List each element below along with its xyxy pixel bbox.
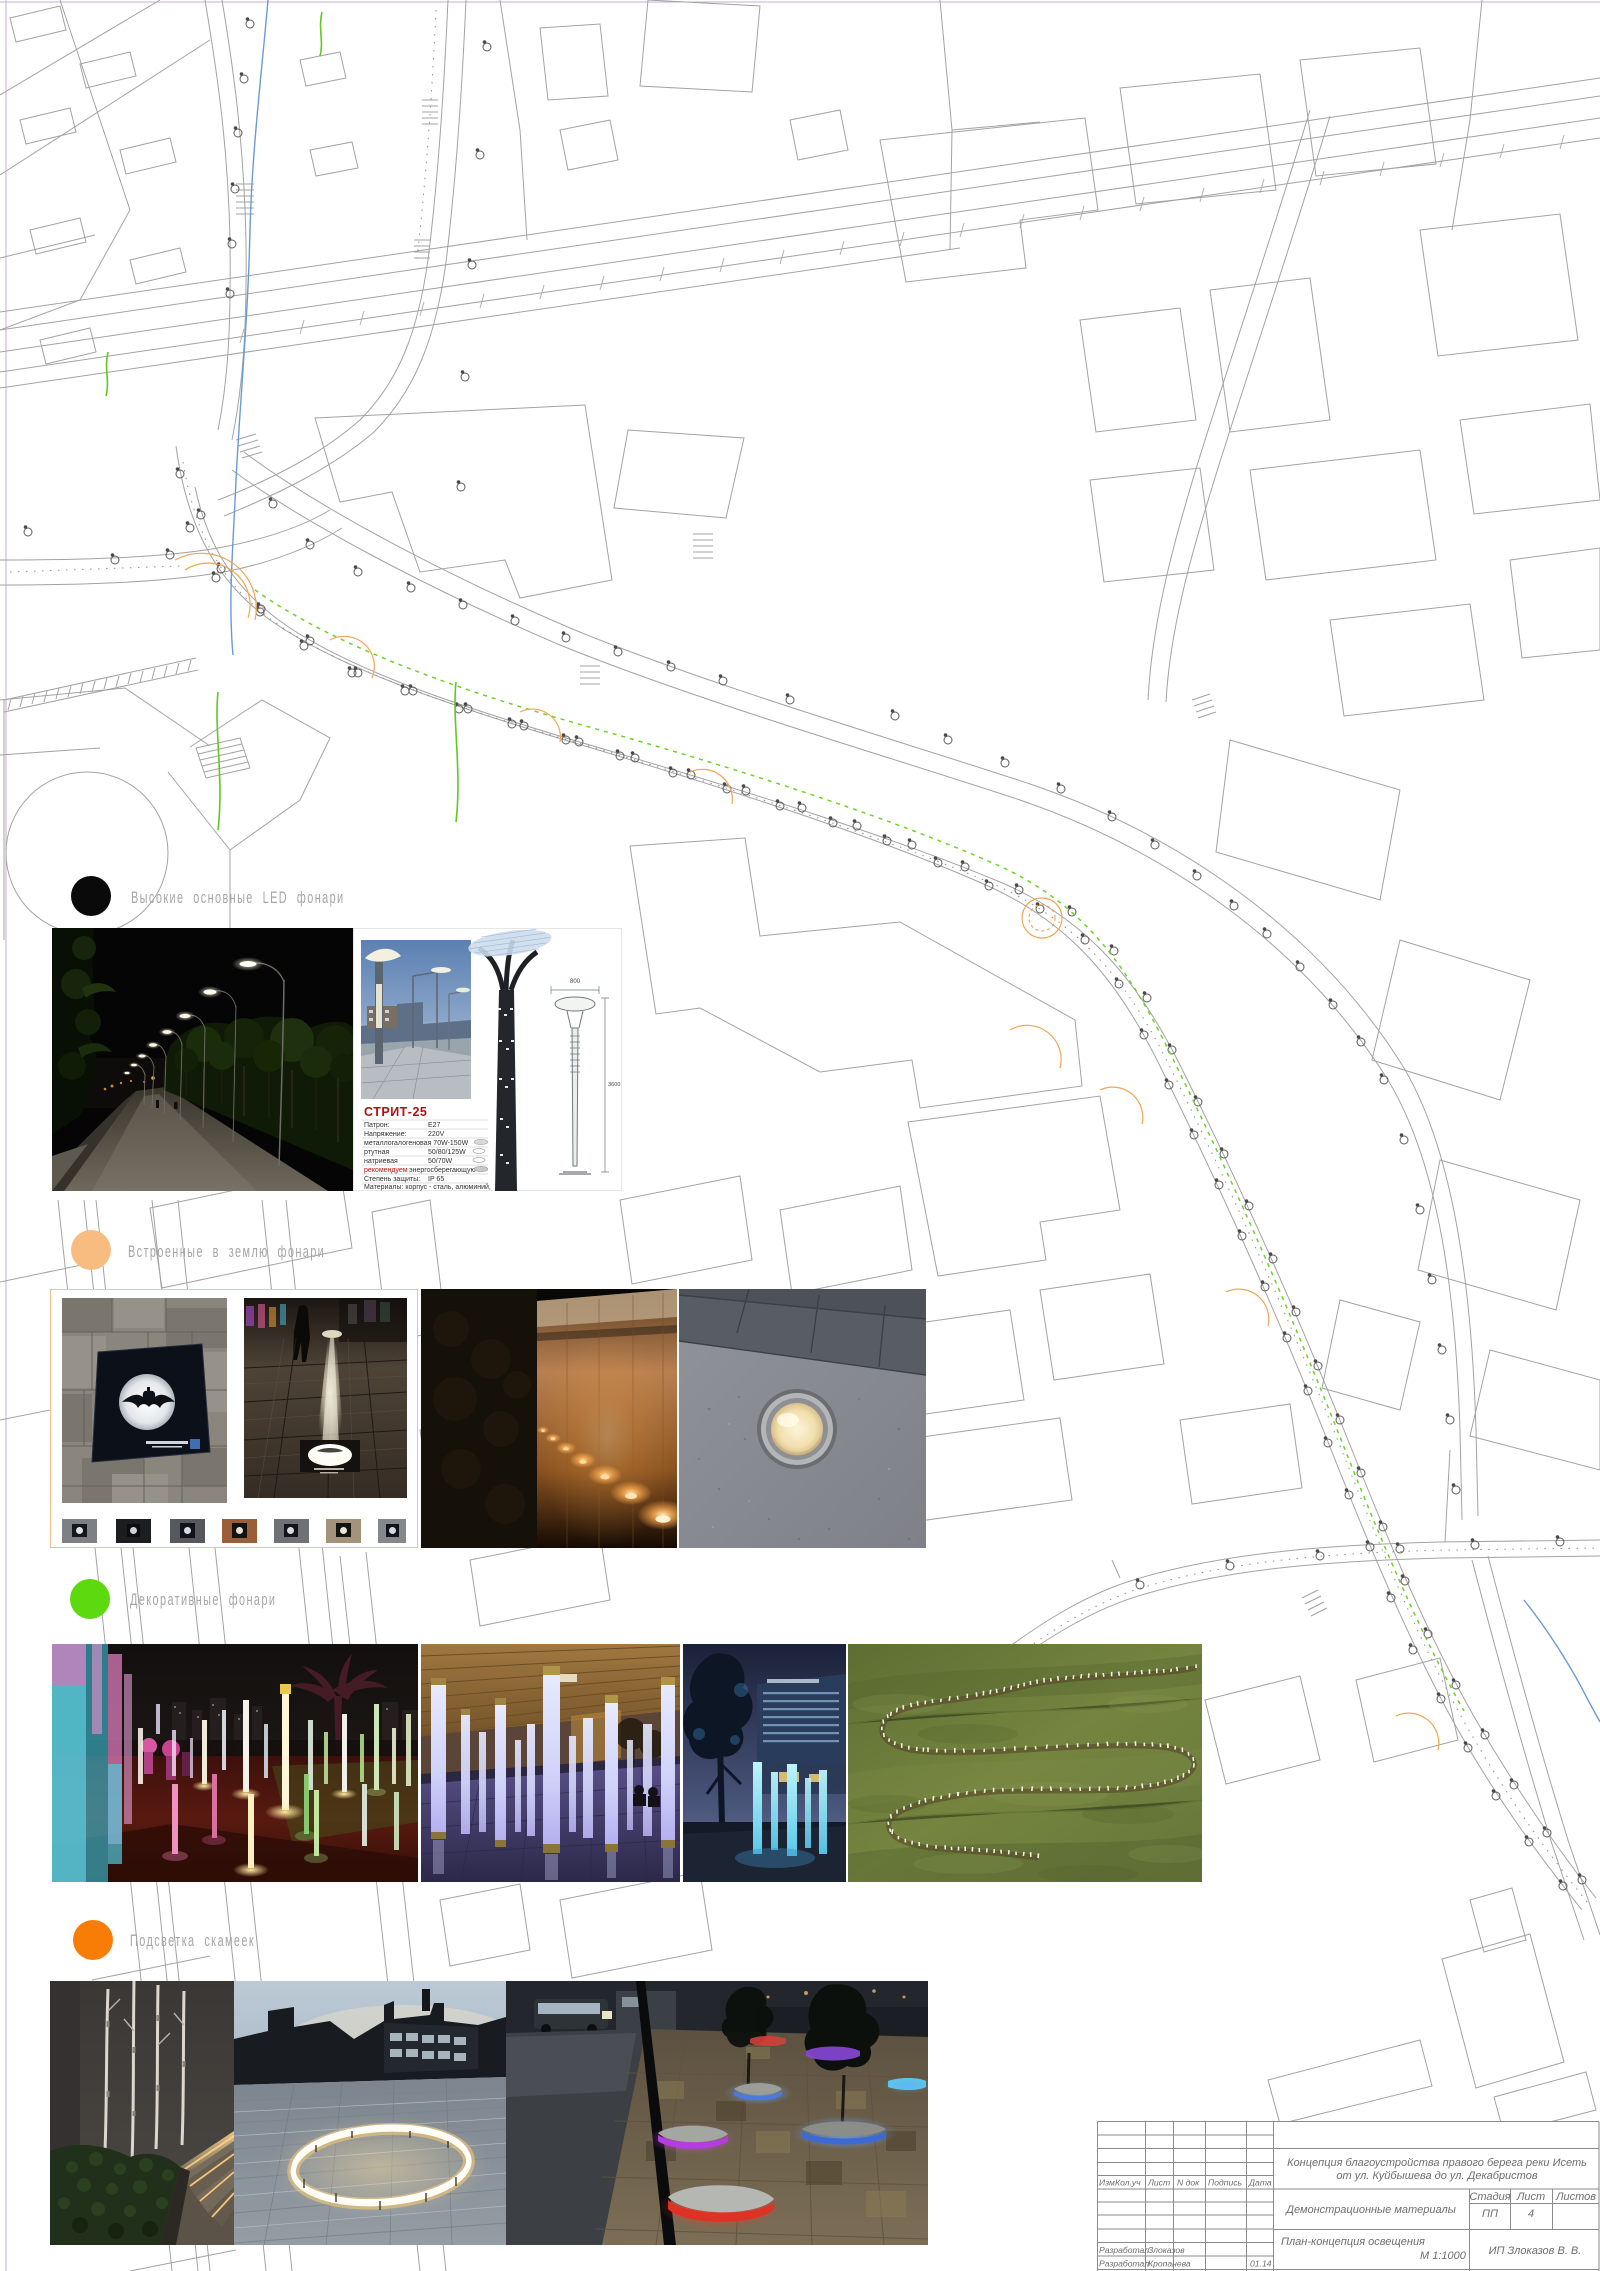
svg-text:01.14: 01.14 xyxy=(1250,2259,1272,2269)
svg-text:ПП: ПП xyxy=(1482,2208,1498,2220)
svg-text:натриевая: натриевая xyxy=(364,1158,398,1165)
svg-text:Разработал: Разработал xyxy=(1099,2245,1149,2255)
svg-text:50/70W: 50/70W xyxy=(428,1158,453,1165)
svg-text:Кол.уч: Кол.уч xyxy=(1115,2178,1141,2188)
svg-text:энергосберегающую: энергосберегающую xyxy=(409,1166,476,1174)
svg-text:3600: 3600 xyxy=(608,1082,620,1088)
svg-text:Лист: Лист xyxy=(1516,2191,1545,2203)
svg-text:Подпись: Подпись xyxy=(1208,2178,1243,2188)
svg-text:Стадия: Стадия xyxy=(1469,2191,1510,2203)
svg-text:Напряжение:: Напряжение: xyxy=(364,1131,407,1138)
svg-text:Разработал: Разработал xyxy=(1099,2259,1149,2269)
svg-text:План-концепция освещения: План-концепция освещения xyxy=(1281,2236,1425,2248)
svg-text:800: 800 xyxy=(570,979,581,985)
svg-text:Злоказов: Злоказов xyxy=(1148,2245,1185,2255)
svg-text:Кропанева: Кропанева xyxy=(1148,2259,1191,2269)
svg-text:50/80/125W: 50/80/125W xyxy=(428,1149,466,1156)
svg-text:М 1:1000: М 1:1000 xyxy=(1420,2250,1467,2262)
svg-text:Патрон:: Патрон: xyxy=(364,1122,390,1129)
svg-text:металлогалогеновая 70W-150W: металлогалогеновая 70W-150W xyxy=(364,1140,469,1147)
svg-text:Листов: Листов xyxy=(1555,2191,1596,2203)
svg-text:Степень защиты:: Степень защиты: xyxy=(364,1176,420,1183)
svg-text:СТРИТ-25: СТРИТ-25 xyxy=(364,1105,427,1119)
svg-text:рекомендуем: рекомендуем xyxy=(364,1167,408,1174)
svg-text:N док: N док xyxy=(1177,2178,1200,2188)
svg-text:ИП Злоказов В. В.: ИП Злоказов В. В. xyxy=(1489,2245,1582,2257)
svg-text:Дата: Дата xyxy=(1248,2178,1272,2188)
svg-text:Лист: Лист xyxy=(1147,2178,1170,2188)
svg-text:4: 4 xyxy=(1528,2208,1534,2220)
svg-text:ртутная: ртутная xyxy=(364,1149,389,1156)
svg-text:IP 65: IP 65 xyxy=(428,1176,444,1183)
svg-text:Демонстрационные материалы: Демонстрационные материалы xyxy=(1284,2204,1456,2216)
svg-text:Изм: Изм xyxy=(1099,2178,1115,2188)
svg-text:220V: 220V xyxy=(428,1131,445,1138)
svg-text:Е27: Е27 xyxy=(428,1122,441,1129)
svg-text:Материалы: корпус - сталь, алю: Материалы: корпус - сталь, алюминий, xyxy=(364,1183,491,1191)
svg-text:Концепция благоустройства прав: Концепция благоустройства правого берега… xyxy=(1287,2157,1587,2169)
svg-text:от ул. Куйбышева до ул. Декабр: от ул. Куйбышева до ул. Декабристов xyxy=(1336,2170,1537,2182)
